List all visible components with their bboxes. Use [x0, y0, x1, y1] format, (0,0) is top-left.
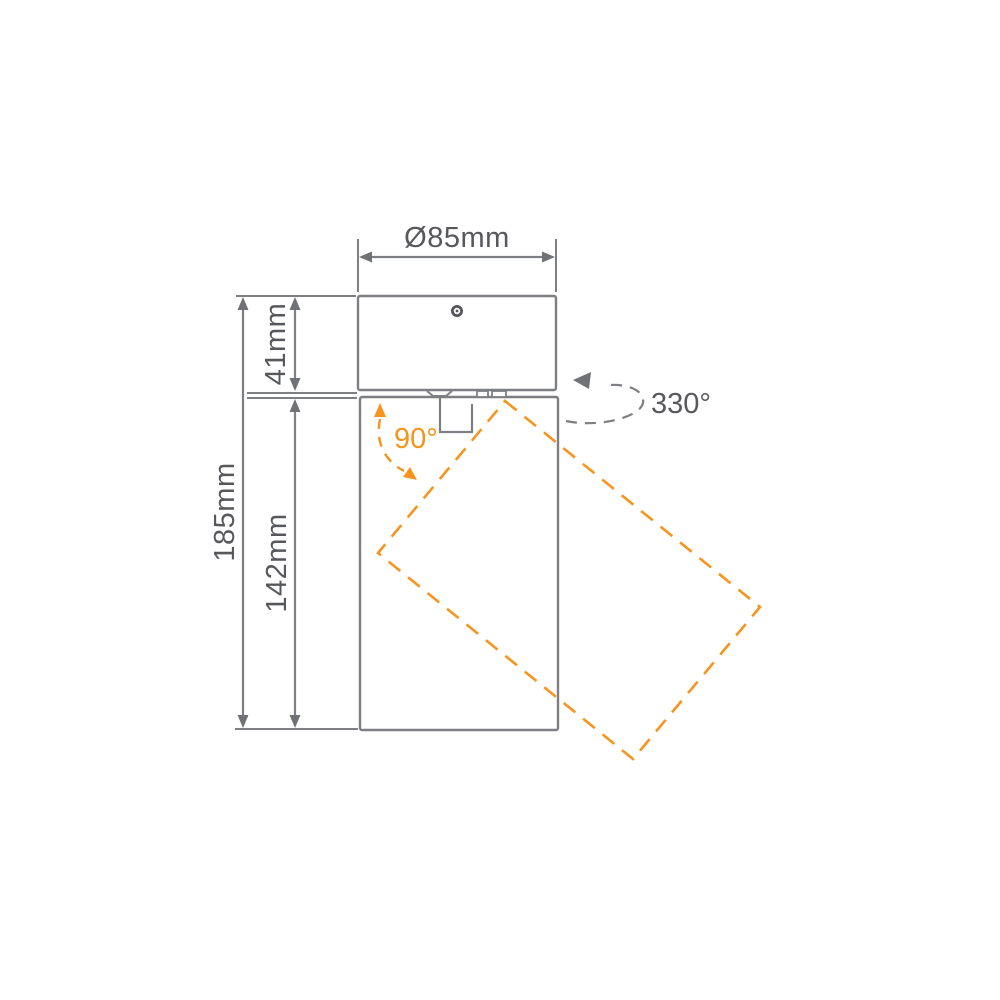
hinge-tab-left [477, 391, 488, 397]
tilt-rotation-label: 90° [394, 423, 438, 455]
dim-body-height-label: 142mm [261, 513, 293, 612]
screw-hole-center-dot [456, 310, 459, 313]
dim-diameter-label: Ø85mm [404, 222, 510, 254]
junction-notch [427, 391, 452, 396]
dim-body-height: 142mm [261, 399, 301, 728]
pan-rotation-indicator: 330° [566, 372, 711, 423]
pan-arc [566, 385, 643, 423]
hinge-tab-right [492, 391, 506, 397]
arrowhead-down-icon [290, 715, 301, 728]
pan-rotation-label: 330° [651, 388, 711, 420]
dim-canopy-height-label: 41mm [260, 303, 292, 386]
arrowhead-right-icon [542, 252, 555, 263]
spotlight-dimension-diagram: Ø85mm 185mm 41mm 142mm [0, 0, 1000, 1000]
diagram-page: Ø85mm 185mm 41mm 142mm [0, 0, 1000, 1000]
dim-extension-lines [235, 296, 358, 729]
arrowhead-down-icon [238, 715, 249, 728]
pan-arrow-icon [573, 372, 591, 389]
arrowhead-left-icon [359, 252, 372, 263]
dim-total-height: 185mm [209, 297, 249, 728]
fixture-drawing [358, 296, 558, 730]
dim-canopy-height: 41mm [260, 297, 301, 391]
dim-total-height-label: 185mm [209, 462, 241, 561]
arrowhead-up-icon [238, 297, 249, 310]
arrowhead-up-icon [290, 399, 301, 412]
dim-diameter: Ø85mm [358, 222, 556, 292]
